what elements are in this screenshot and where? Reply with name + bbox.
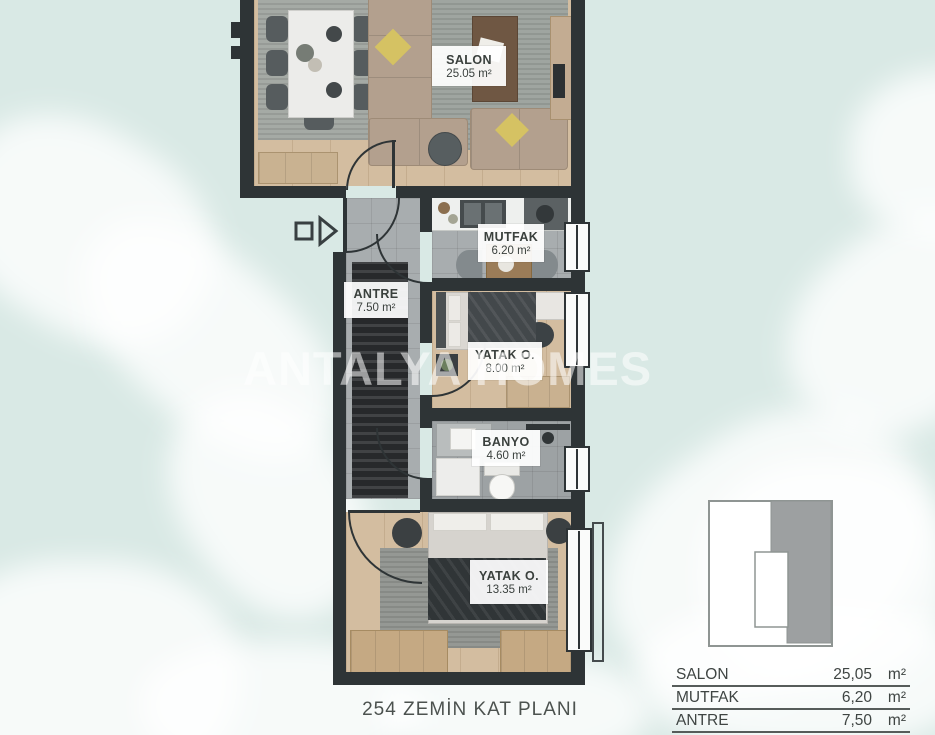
room-label-banyo: BANYO 4.60 m² (472, 430, 540, 466)
legend-room-unit: m² (872, 666, 906, 684)
legend-row: SALON 25,05 m² (672, 664, 910, 687)
watermark-text: ANTALYA HOMES (243, 341, 652, 396)
sink-basin (485, 203, 502, 225)
wall-segment (396, 186, 432, 198)
wall-segment (420, 395, 432, 428)
room-name: SALON (446, 53, 492, 67)
wall-segment (231, 46, 240, 59)
dining-chair (266, 84, 288, 110)
plan-caption: 254 ZEMİN KAT PLANI (320, 699, 620, 721)
wall-segment (231, 22, 240, 38)
window-kitchen (564, 222, 590, 272)
room-area: 6.20 m² (492, 245, 531, 257)
room-label-salon: SALON 25.05 m² (432, 46, 506, 86)
door-leaf (392, 140, 395, 188)
room-area: 4.60 m² (487, 450, 526, 462)
watercolor-blob (850, 70, 935, 240)
room-label-antre: ANTRE 7.50 m² (344, 282, 408, 318)
bedroom2-pillow (490, 513, 544, 531)
dining-plate (326, 26, 342, 42)
tv (553, 64, 565, 98)
room-name: YATAK O. (479, 569, 539, 583)
window-bedroom2 (566, 528, 592, 652)
room-area: 13.35 m² (486, 584, 531, 596)
wall-segment (432, 186, 571, 198)
sideboard (258, 152, 338, 184)
legend-room-name: MUTFAK (676, 689, 820, 707)
pouf (428, 132, 462, 166)
room-name: MUTFAK (484, 230, 538, 244)
counter-decor (438, 202, 450, 214)
toilet-bowl (489, 474, 515, 500)
wall-segment (420, 282, 432, 343)
wall-segment (240, 186, 346, 198)
shower-head (542, 432, 554, 444)
dining-plate (326, 82, 342, 98)
wall-segment (420, 499, 571, 512)
legend-room-unit: m² (872, 712, 906, 730)
bedroom1-blanket (468, 292, 536, 348)
room-name: ANTRE (353, 287, 398, 301)
room-area: 7.50 m² (357, 302, 396, 314)
room-name: BANYO (482, 435, 529, 449)
bedroom1-headboard (436, 292, 446, 348)
legend-room-value: 7,50 (820, 712, 872, 730)
wardrobe (350, 630, 448, 674)
entrance-arrow-icon (292, 212, 342, 250)
window-bay-frame (592, 522, 604, 662)
legend-room-unit: m² (872, 689, 906, 707)
wall-segment (240, 0, 254, 198)
window-banyo (564, 446, 590, 492)
legend-room-name: SALON (676, 666, 820, 684)
legend-room-name: ANTRE (676, 712, 820, 730)
wall-segment (432, 408, 571, 421)
door-leaf (348, 510, 420, 513)
bedroom1-pillow (448, 295, 461, 321)
legend-row: MUTFAK 6,20 m² (672, 687, 910, 710)
bedroom2-pillow (433, 513, 487, 531)
wardrobe (500, 630, 572, 674)
table-decor (308, 58, 322, 72)
building-notch (755, 552, 788, 627)
door-leaf-entrance (343, 198, 347, 252)
stove-pan (536, 205, 554, 223)
room-label-yatak2: YATAK O. 13.35 m² (470, 560, 548, 604)
floor-plan-page: SALON 25.05 m² MUTFAK 6.20 m² ANTRE 7.50… (0, 0, 935, 735)
sectional-sofa-vertical (368, 0, 432, 122)
legend-table: SALON 25,05 m² MUTFAK 6,20 m² ANTRE 7,50… (672, 664, 910, 735)
wall-segment (333, 672, 585, 685)
room-label-mutfak: MUTFAK 6.20 m² (478, 224, 544, 262)
dining-chair (266, 50, 288, 76)
legend-row: ANTRE 7,50 m² (672, 710, 910, 733)
sink-basin (464, 203, 481, 225)
wall-segment (420, 198, 432, 232)
dining-chair (266, 16, 288, 42)
site-key-diagram (708, 500, 833, 648)
legend-room-value: 25,05 (820, 666, 872, 684)
room-area: 25.05 m² (446, 68, 491, 80)
counter-decor (448, 214, 458, 224)
wall-segment (432, 278, 571, 291)
legend-room-value: 6,20 (820, 689, 872, 707)
